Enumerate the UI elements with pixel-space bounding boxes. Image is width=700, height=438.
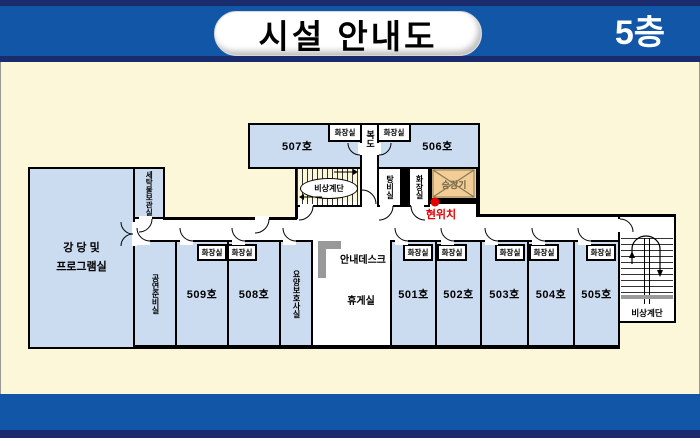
elevator-label: 승강기 [442, 178, 467, 191]
wall [428, 198, 480, 204]
room-toilet-vertical: 화장실 [408, 167, 430, 207]
room-509-label: 509호 [187, 286, 217, 302]
info-desk-label: 안내데스크 [340, 251, 386, 266]
stair-landing [621, 295, 673, 299]
current-location-label: 현위치 [413, 206, 469, 222]
corridor-label: 복도 [365, 130, 374, 148]
wall [295, 205, 298, 219]
lounge-label: 휴게실 [332, 292, 390, 307]
elevator: 승강기 [430, 167, 478, 201]
toilet-label: 화장실 [591, 247, 612, 258]
toilet-label: 화장실 [335, 127, 356, 138]
toilet-box: 화장실 [586, 244, 616, 261]
toilet-box: 화장실 [328, 123, 362, 142]
toilet-box: 화장실 [197, 244, 227, 261]
prep-label: 공연준비실 [151, 274, 159, 314]
toilet-box: 화장실 [529, 244, 559, 261]
auditorium-label-line2: 프로그램실 [56, 258, 107, 277]
toilet-box: 화장실 [403, 244, 433, 261]
toilet-label: 화장실 [442, 247, 463, 258]
room-pantry: 탕비실 [377, 167, 402, 207]
room-504-label: 504호 [536, 286, 566, 302]
header-bar: 시설 안내도 5층 [0, 0, 700, 62]
stairs-label: 비상계단 [314, 183, 343, 194]
auditorium-label-line1: 강 당 및 [56, 239, 107, 258]
page-title: 시설 안내도 [259, 10, 438, 58]
wall [163, 217, 297, 220]
room-503-label: 503호 [489, 286, 519, 302]
toilet-label: 화장실 [408, 247, 429, 258]
toilet-label: 화장실 [384, 127, 405, 138]
stairs-oval: 비상계단 [300, 178, 358, 199]
toilet-label: 화장실 [534, 247, 555, 258]
room-auditorium: 강 당 및 프로그램실 [28, 167, 135, 349]
room-501-label: 501호 [398, 286, 428, 302]
toilet-label: 화장실 [232, 247, 253, 258]
footer-edge [0, 430, 700, 438]
toilet-box: 화장실 [495, 244, 525, 261]
room-506-label: 506호 [422, 138, 452, 154]
emergency-stairs-top: 비상계단 [295, 167, 362, 207]
room-507-label: 507호 [282, 138, 312, 154]
toilet-box: 화장실 [437, 244, 467, 261]
floor-badge: 5층 [600, 12, 680, 54]
title-pill: 시설 안내도 [214, 11, 482, 56]
toilet-label: 화장실 [415, 175, 423, 199]
emergency-stairs-right: 비상계단 [618, 215, 676, 323]
toilet-label: 화장실 [500, 247, 521, 258]
room-508-label: 508호 [239, 286, 269, 302]
stair-treads [621, 238, 673, 300]
room-laundry-storage: 세탁물보관실 [133, 167, 165, 219]
room-505-label: 505호 [581, 286, 611, 302]
stairs-label: 비상계단 [631, 307, 662, 319]
pantry-label: 탕비실 [386, 175, 394, 199]
stairs-right-label-box: 비상계단 [621, 305, 673, 320]
facility-guide-sign: 시설 안내도 5층 강 당 및 프로그램실 세탁물보관실 507호 506호 복… [0, 0, 700, 438]
toilet-label: 화장실 [202, 247, 223, 258]
care-label: 요양보호사실 [292, 270, 300, 318]
toilet-box: 화장실 [377, 123, 411, 142]
room-502-label: 502호 [443, 286, 473, 302]
laundry-label: 세탁물보관실 [145, 171, 153, 216]
toilet-box: 화장실 [227, 244, 257, 261]
room-caregiver: 요양보호사실 [279, 240, 313, 347]
room-performance-prep: 공연준비실 [133, 240, 177, 347]
